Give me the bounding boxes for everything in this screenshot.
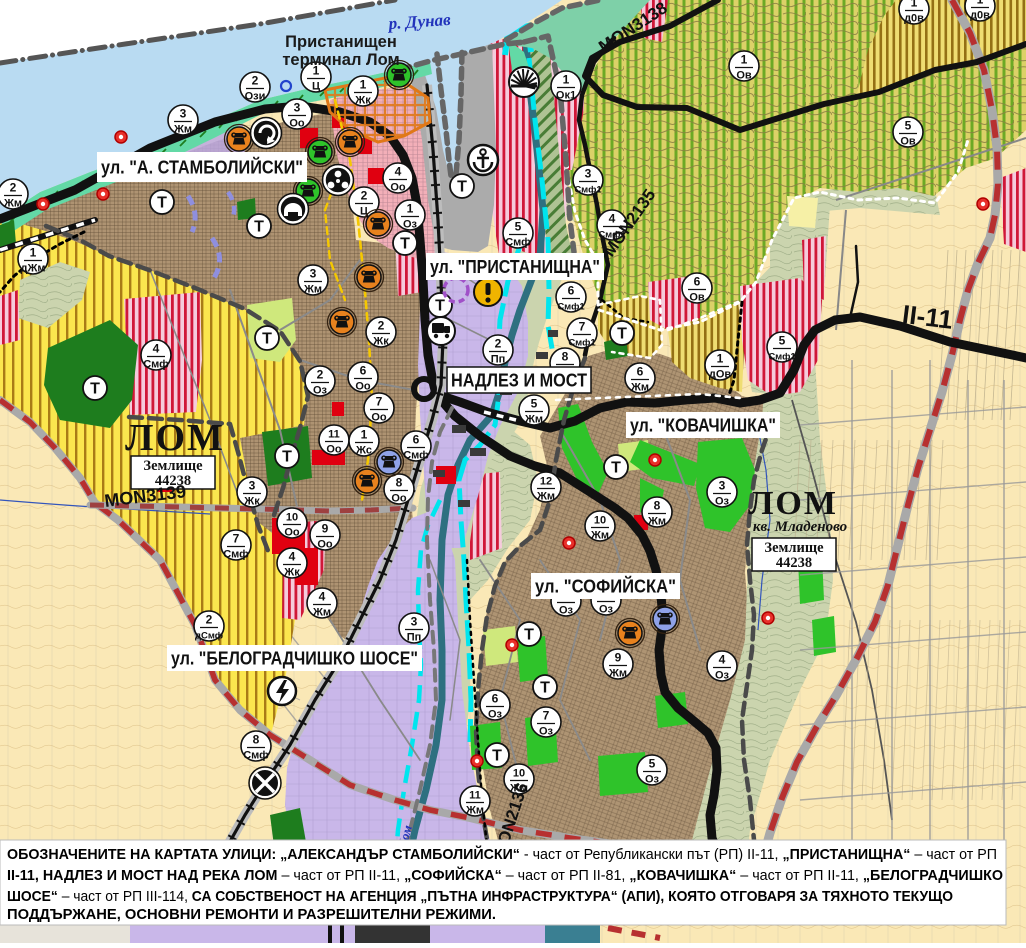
svg-text:Смф: Смф [403, 450, 429, 462]
svg-text:Смф: Смф [223, 549, 249, 561]
svg-text:Жм: Жм [524, 414, 543, 426]
svg-text:3: 3 [249, 479, 256, 493]
svg-text:Смф: Смф [505, 237, 531, 249]
svg-text:Жм: Жм [608, 668, 627, 680]
svg-text:9: 9 [322, 522, 329, 536]
svg-text:Оз: Оз [559, 605, 574, 617]
svg-text:1: 1 [911, 0, 918, 10]
svg-text:Оо: Оо [317, 539, 333, 551]
svg-text:44238: 44238 [776, 555, 812, 571]
svg-text:дСмф: дСмф [195, 631, 223, 642]
svg-text:ул. "КОВАЧИШКА": ул. "КОВАЧИШКА" [630, 415, 776, 436]
svg-text:Оз: Оз [715, 496, 730, 508]
svg-text:6: 6 [413, 433, 420, 447]
svg-text:7: 7 [233, 532, 240, 546]
svg-text:дОв: дОв [709, 369, 732, 381]
svg-text:1: 1 [407, 202, 414, 216]
svg-text:Смф1: Смф1 [574, 185, 602, 196]
svg-text:5: 5 [779, 334, 786, 348]
svg-text:ул. "БЕЛОГРАДЧИШКО ШОСЕ": ул. "БЕЛОГРАДЧИШКО ШОСЕ" [171, 648, 418, 669]
svg-text:ЛОМ: ЛОМ [748, 485, 838, 522]
svg-text:6: 6 [637, 365, 644, 379]
svg-text:II-11, НАДЛЕЗ И МОСТ НАД РЕКА: II-11, НАДЛЕЗ И МОСТ НАД РЕКА ЛОМ – част… [7, 866, 1003, 884]
svg-text:8: 8 [654, 499, 661, 513]
svg-text:Т: Т [400, 236, 410, 253]
svg-text:1: 1 [360, 78, 367, 92]
svg-text:Оо: Оо [390, 182, 406, 194]
svg-text:5: 5 [649, 757, 656, 771]
svg-text:Жм: Жм [3, 198, 22, 210]
svg-text:6: 6 [360, 364, 367, 378]
svg-text:1: 1 [717, 352, 724, 366]
svg-text:Т: Т [492, 748, 502, 765]
svg-text:Оо: Оо [391, 493, 407, 505]
svg-text:3: 3 [310, 267, 317, 281]
svg-text:Жм: Жм [536, 491, 555, 503]
svg-text:Смф: Смф [243, 750, 269, 762]
svg-text:2: 2 [10, 181, 17, 195]
svg-text:4: 4 [319, 590, 326, 604]
svg-text:10: 10 [513, 768, 525, 780]
svg-text:Землище: Землище [143, 458, 203, 474]
svg-text:3: 3 [411, 615, 418, 629]
svg-text:Т: Т [157, 195, 167, 212]
svg-text:Смф: Смф [143, 359, 169, 371]
svg-text:Оз: Оз [539, 726, 554, 738]
svg-text:Оо: Оо [371, 412, 387, 424]
svg-text:4: 4 [289, 550, 296, 564]
svg-text:6: 6 [694, 275, 701, 289]
svg-text:3: 3 [180, 107, 187, 121]
svg-text:Т: Т [90, 381, 100, 398]
svg-text:ул. "А. СТАМБОЛИЙСКИ": ул. "А. СТАМБОЛИЙСКИ" [101, 157, 303, 178]
svg-text:8: 8 [253, 733, 260, 747]
svg-text:Т: Т [524, 627, 534, 644]
svg-text:ОБОЗНАЧЕНИТЕ НА КАРТАТА УЛИЦИ:: ОБОЗНАЧЕНИТЕ НА КАРТАТА УЛИЦИ: „АЛЕКСАНД… [7, 845, 997, 863]
svg-text:Оз: Оз [715, 670, 730, 682]
svg-text:Т: Т [611, 460, 621, 477]
svg-text:Оо: Оо [289, 118, 305, 130]
svg-text:ЛОМ: ЛОМ [125, 417, 225, 459]
svg-text:Оз: Оз [645, 774, 660, 786]
svg-text:5: 5 [531, 397, 538, 411]
svg-text:ПОДДЪРЖАНЕ, ОСНОВНИ РЕМОНТИ И: ПОДДЪРЖАНЕ, ОСНОВНИ РЕМОНТИ И РАЗРЕШИТЕЛ… [7, 906, 496, 923]
svg-text:Жм: Жм [173, 124, 192, 136]
svg-text:4: 4 [719, 653, 726, 667]
svg-text:1: 1 [741, 53, 748, 67]
svg-text:Ов: Ов [736, 70, 752, 82]
svg-text:Смф1: Смф1 [568, 338, 596, 349]
svg-text:10: 10 [594, 515, 606, 527]
svg-text:Пристанищен: Пристанищен [285, 33, 397, 51]
svg-text:Оз: Оз [488, 709, 503, 721]
svg-text:6: 6 [568, 284, 575, 298]
svg-text:12: 12 [540, 476, 552, 488]
svg-text:7: 7 [579, 320, 586, 334]
svg-text:Жс: Жс [355, 445, 372, 457]
svg-text:II-11: II-11 [901, 299, 955, 335]
svg-text:Пп: Пп [491, 354, 506, 366]
svg-text:Оз: Оз [403, 219, 418, 231]
svg-text:ул. "СОФИЙСКА": ул. "СОФИЙСКА" [535, 576, 676, 597]
svg-text:Жк: Жк [354, 95, 371, 107]
svg-text:1: 1 [361, 428, 368, 442]
svg-text:Оо: Оо [284, 527, 300, 539]
svg-text:ул. "ПРИСТАНИЩНА": ул. "ПРИСТАНИЩНА" [430, 256, 600, 277]
svg-text:Ов: Ов [900, 136, 916, 148]
svg-text:Т: Т [540, 680, 550, 697]
svg-text:8: 8 [562, 350, 569, 364]
svg-text:3: 3 [719, 479, 726, 493]
svg-text:Т: Т [282, 449, 292, 466]
svg-text:Т: Т [617, 326, 627, 343]
svg-text:д0в: д0в [904, 13, 924, 25]
svg-text:Т: Т [435, 298, 445, 315]
svg-text:Т: Т [457, 179, 467, 196]
svg-text:кв. Младеново: кв. Младеново [753, 519, 847, 535]
svg-text:7: 7 [376, 395, 383, 409]
svg-text:Землище: Землище [764, 540, 824, 556]
svg-text:3: 3 [294, 101, 301, 115]
svg-text:2: 2 [252, 74, 259, 88]
svg-text:2: 2 [206, 613, 213, 627]
svg-text:Жм: Жм [630, 382, 649, 394]
svg-text:Жк: Жк [283, 567, 300, 579]
svg-text:Пп: Пп [407, 632, 422, 644]
svg-text:Оз: Оз [313, 385, 328, 397]
svg-text:7: 7 [543, 709, 550, 723]
svg-text:терминал Лом: терминал Лом [282, 51, 399, 69]
svg-text:Жм: Жм [590, 530, 609, 542]
svg-text:Жм: Жм [312, 607, 331, 619]
svg-text:2: 2 [317, 368, 324, 382]
svg-text:Оо: Оо [326, 444, 342, 456]
svg-text:Ози: Ози [245, 91, 266, 103]
svg-text:4: 4 [609, 212, 616, 226]
svg-text:НАДЛЕЗ И МОСТ: НАДЛЕЗ И МОСТ [451, 370, 588, 391]
svg-text:5: 5 [515, 220, 522, 234]
svg-text:4: 4 [395, 165, 402, 179]
svg-text:Жк: Жк [372, 336, 389, 348]
svg-text:4: 4 [153, 342, 160, 356]
svg-text:дЖм: дЖм [20, 263, 45, 275]
svg-text:Смф1: Смф1 [768, 352, 796, 363]
svg-text:Ок1: Ок1 [556, 90, 576, 102]
svg-text:11: 11 [328, 429, 340, 441]
svg-text:Жк: Жк [243, 496, 260, 508]
svg-text:1: 1 [563, 73, 570, 87]
svg-text:11: 11 [469, 790, 481, 802]
svg-text:2: 2 [378, 319, 385, 333]
svg-text:2: 2 [495, 337, 502, 351]
svg-text:Т: Т [254, 219, 264, 236]
svg-text:1: 1 [977, 0, 984, 7]
svg-text:8: 8 [396, 476, 403, 490]
svg-text:Жм: Жм [303, 284, 322, 296]
svg-text:Т: Т [262, 331, 272, 348]
svg-text:6: 6 [492, 692, 499, 706]
svg-text:10: 10 [286, 512, 298, 524]
svg-text:д0в: д0в [970, 10, 990, 22]
svg-text:Оз: Оз [599, 604, 614, 616]
svg-text:Смф1: Смф1 [557, 302, 585, 313]
svg-text:Ов: Ов [689, 292, 705, 304]
svg-text:ШОСЕ“ – част от РП III-114, СА: ШОСЕ“ – част от РП III-114, СА СОБСТВЕНО… [7, 888, 953, 905]
svg-text:1: 1 [30, 246, 37, 260]
svg-text:3: 3 [585, 167, 592, 181]
svg-text:Оо: Оо [355, 381, 371, 393]
svg-text:Жм: Жм [647, 516, 666, 528]
svg-text:2: 2 [361, 189, 368, 203]
svg-text:Жм: Жм [465, 805, 484, 817]
svg-text:Ц: Ц [312, 81, 320, 93]
svg-text:5: 5 [905, 119, 912, 133]
svg-text:9: 9 [615, 651, 622, 665]
